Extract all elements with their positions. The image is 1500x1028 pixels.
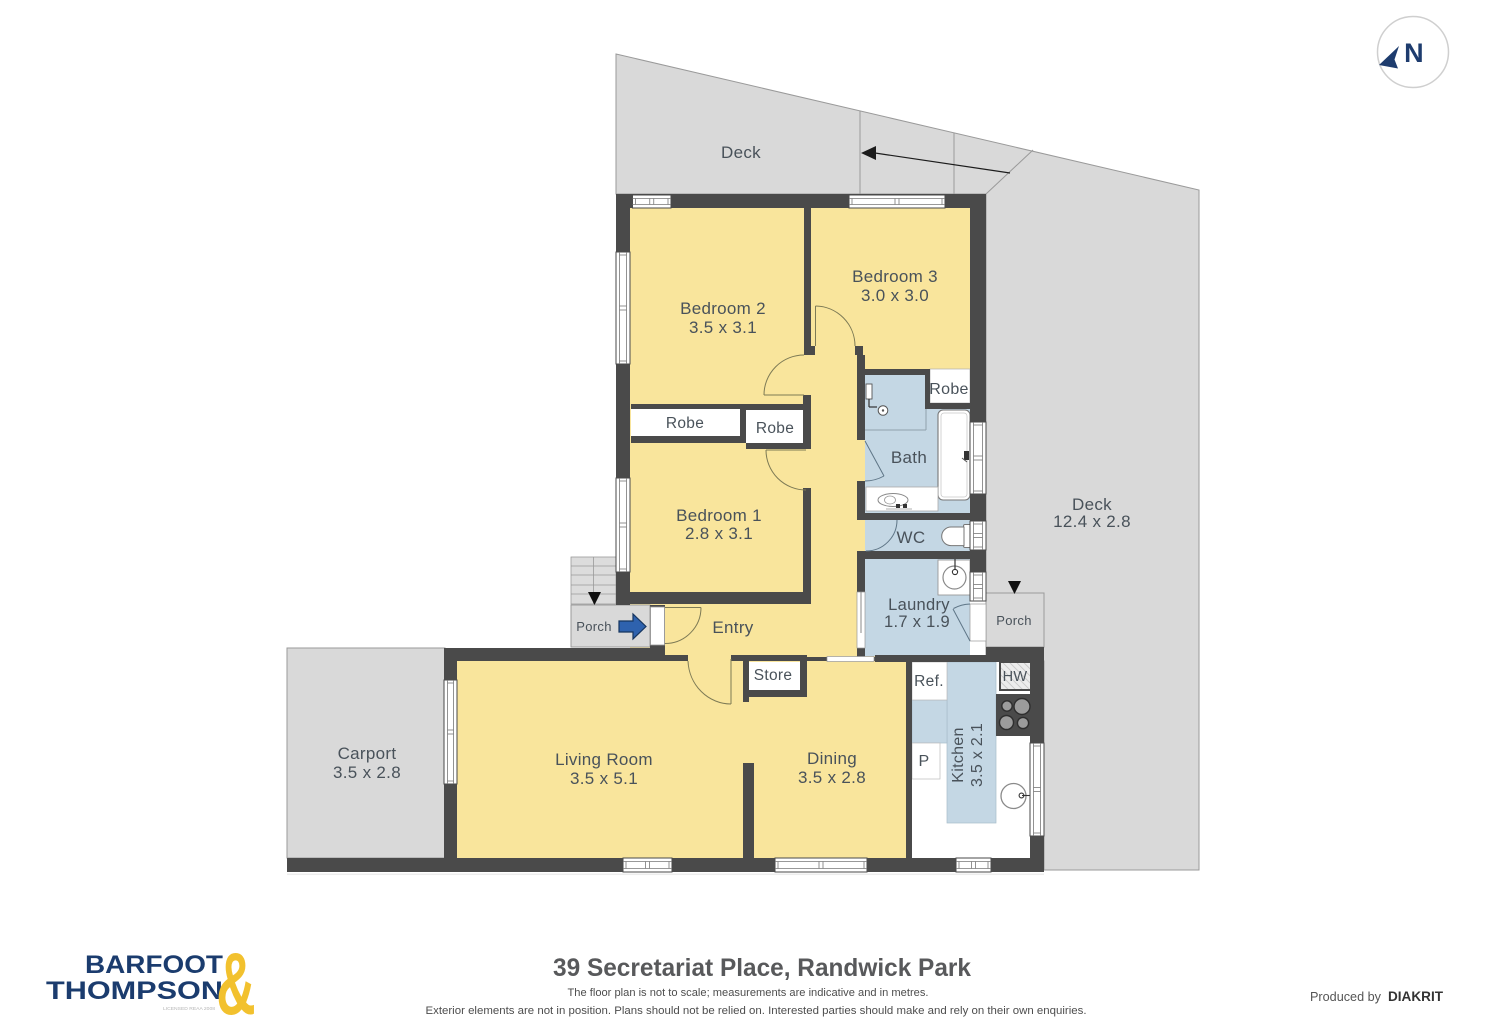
svg-text:Robe: Robe xyxy=(929,381,968,398)
svg-text:3.5 x 2.8: 3.5 x 2.8 xyxy=(333,763,401,782)
svg-text:Bath: Bath xyxy=(891,448,927,467)
svg-text:1.7 x 1.9: 1.7 x 1.9 xyxy=(884,613,950,631)
svg-text:Robe: Robe xyxy=(666,415,704,432)
svg-text:Carport: Carport xyxy=(338,744,397,763)
svg-text:3.5 x 2.1: 3.5 x 2.1 xyxy=(969,723,986,787)
svg-text:2.8 x 3.1: 2.8 x 3.1 xyxy=(685,524,753,543)
svg-text:N: N xyxy=(1404,38,1424,68)
svg-text:Exterior elements are not in p: Exterior elements are not in position. P… xyxy=(426,1005,1087,1017)
svg-text:Bedroom 1: Bedroom 1 xyxy=(676,506,762,525)
svg-text:Deck: Deck xyxy=(721,143,761,162)
svg-text:The floor plan is not to scale: The floor plan is not to scale; measurem… xyxy=(568,987,929,999)
svg-text:3.5 x 3.1: 3.5 x 3.1 xyxy=(689,318,757,337)
svg-text:12.4 x 2.8: 12.4 x 2.8 xyxy=(1053,512,1131,531)
svg-text:3.0 x 3.0: 3.0 x 3.0 xyxy=(861,286,929,305)
svg-text:Ref.: Ref. xyxy=(914,673,944,690)
svg-text:WC: WC xyxy=(897,528,926,547)
svg-text:Bedroom 2: Bedroom 2 xyxy=(680,299,766,318)
svg-text:Porch: Porch xyxy=(576,619,611,634)
svg-text:&: & xyxy=(216,935,255,1028)
svg-text:Living Room: Living Room xyxy=(555,750,653,769)
svg-text:Dining: Dining xyxy=(807,749,857,768)
svg-text:Entry: Entry xyxy=(712,618,753,637)
svg-text:THOMPSON: THOMPSON xyxy=(46,977,223,1005)
svg-text:Produced by: Produced by xyxy=(1310,989,1381,1004)
svg-text:Porch: Porch xyxy=(996,613,1031,628)
svg-text:Bedroom 3: Bedroom 3 xyxy=(852,267,938,286)
svg-text:39 Secretariat Place, Randwick: 39 Secretariat Place, Randwick Park xyxy=(553,954,971,982)
svg-text:BARFOOT: BARFOOT xyxy=(85,951,223,979)
svg-text:Store: Store xyxy=(754,667,793,684)
svg-text:P: P xyxy=(919,753,930,770)
svg-text:Laundry: Laundry xyxy=(888,596,950,614)
svg-text:Robe: Robe xyxy=(756,420,794,437)
svg-text:3.5 x 2.8: 3.5 x 2.8 xyxy=(798,768,866,787)
svg-text:DIAKRIT: DIAKRIT xyxy=(1388,988,1443,1004)
svg-text:Kitchen: Kitchen xyxy=(950,727,967,782)
svg-text:HW: HW xyxy=(1003,669,1028,685)
svg-text:LICENSED REAA 2008: LICENSED REAA 2008 xyxy=(163,1006,215,1012)
svg-text:3.5 x 5.1: 3.5 x 5.1 xyxy=(570,769,638,788)
